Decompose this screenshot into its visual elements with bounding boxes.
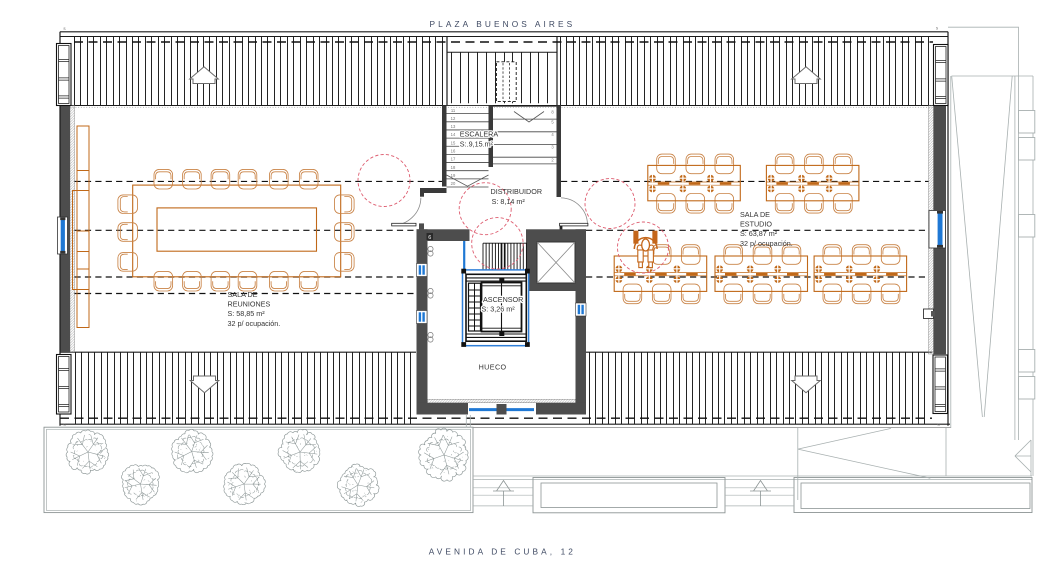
svg-text:HUECO: HUECO	[479, 362, 507, 371]
svg-text:REUNIONES: REUNIONES	[228, 300, 271, 309]
svg-text:S: 9,15 m²: S: 9,15 m²	[460, 139, 494, 148]
svg-text:16: 16	[451, 149, 456, 154]
svg-text:S: 58,85 m²: S: 58,85 m²	[228, 309, 266, 318]
svg-text:DISTRIBUIDOR: DISTRIBUIDOR	[491, 187, 543, 196]
svg-text:ASCENSOR: ASCENSOR	[483, 295, 523, 304]
svg-text:11: 11	[451, 108, 456, 113]
svg-text:ESTUDIO: ESTUDIO	[740, 220, 772, 229]
svg-text:6: 6	[428, 235, 431, 241]
svg-text:32 p/ ocupación.: 32 p/ ocupación.	[740, 239, 793, 248]
svg-text:S: 63,87 m²: S: 63,87 m²	[740, 229, 778, 238]
svg-text:17: 17	[451, 157, 456, 162]
svg-text:S: 3,26 m²: S: 3,26 m²	[482, 304, 516, 313]
svg-text:18: 18	[451, 165, 456, 170]
svg-text:20: 20	[451, 181, 456, 186]
svg-text:SALA DE: SALA DE	[228, 290, 258, 299]
svg-text:SALA DE: SALA DE	[740, 210, 770, 219]
svg-text:ESCALERA: ESCALERA	[460, 130, 499, 139]
svg-text:S: 8,14 m²: S: 8,14 m²	[492, 197, 526, 206]
svg-text:14: 14	[451, 132, 456, 137]
svg-text:32 p/ ocupación.: 32 p/ ocupación.	[228, 319, 281, 328]
svg-text:PLAZA BUENOS AIRES: PLAZA BUENOS AIRES	[430, 19, 576, 29]
svg-text:12: 12	[451, 116, 456, 121]
svg-text:13: 13	[451, 124, 456, 129]
svg-text:AVENIDA DE CUBA, 12: AVENIDA DE CUBA, 12	[429, 547, 576, 557]
svg-text:15: 15	[451, 140, 456, 145]
svg-text:19: 19	[451, 173, 456, 178]
